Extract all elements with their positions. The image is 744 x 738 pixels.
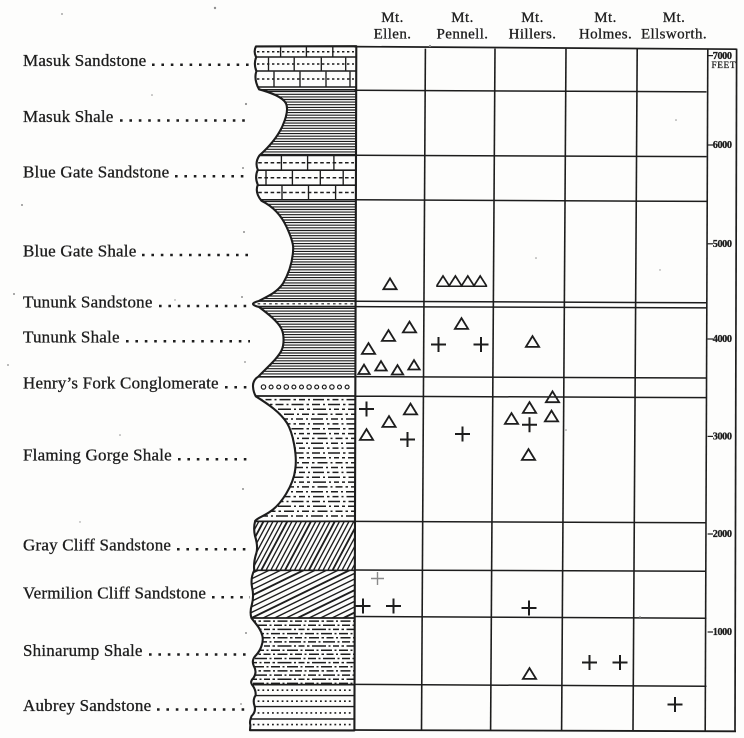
svg-text:Blue Gate Sandstone: Blue Gate Sandstone [23,163,169,182]
svg-text:Shinarump Shale: Shinarump Shale [23,641,143,660]
svg-text:Mt.: Mt. [451,10,473,26]
svg-text:Flaming Gorge Shale: Flaming Gorge Shale [23,446,172,465]
svg-text:Vermilion Cliff Sandstone: Vermilion Cliff Sandstone [23,584,206,603]
svg-text:Tununk Sandstone: Tununk Sandstone [23,292,153,311]
svg-text:6000: 6000 [713,140,732,151]
svg-text:Gray Cliff Sandstone: Gray Cliff Sandstone [23,536,171,555]
svg-text:2000: 2000 [713,529,732,540]
svg-text:Aubrey Sandstone: Aubrey Sandstone [23,696,151,715]
svg-text:7000: 7000 [713,51,732,62]
svg-text:Masuk Sandstone: Masuk Sandstone [23,51,146,70]
svg-text:Hillers.: Hillers. [509,27,557,43]
svg-text:Mt.: Mt. [594,10,616,26]
svg-text:Holmes.: Holmes. [579,27,632,43]
svg-text:Ellsworth.: Ellsworth. [641,27,707,43]
svg-text:Tununk Shale: Tununk Shale [23,328,120,347]
svg-text:Masuk Shale: Masuk Shale [23,107,114,126]
svg-text:Ellen.: Ellen. [374,27,412,43]
svg-text:3000: 3000 [713,432,732,443]
svg-text:1000: 1000 [713,627,732,638]
svg-text:5000: 5000 [713,239,732,250]
svg-text:FEET: FEET [712,61,737,71]
svg-text:Mt.: Mt. [663,10,685,26]
svg-text:Mt.: Mt. [381,10,403,26]
svg-text:Pennell.: Pennell. [437,27,489,43]
svg-text:Henry’s Fork Conglomerate: Henry’s Fork Conglomerate [23,374,219,393]
svg-text:Blue Gate Shale: Blue Gate Shale [23,241,136,260]
svg-text:4000: 4000 [713,334,732,345]
svg-text:Mt.: Mt. [521,10,543,26]
